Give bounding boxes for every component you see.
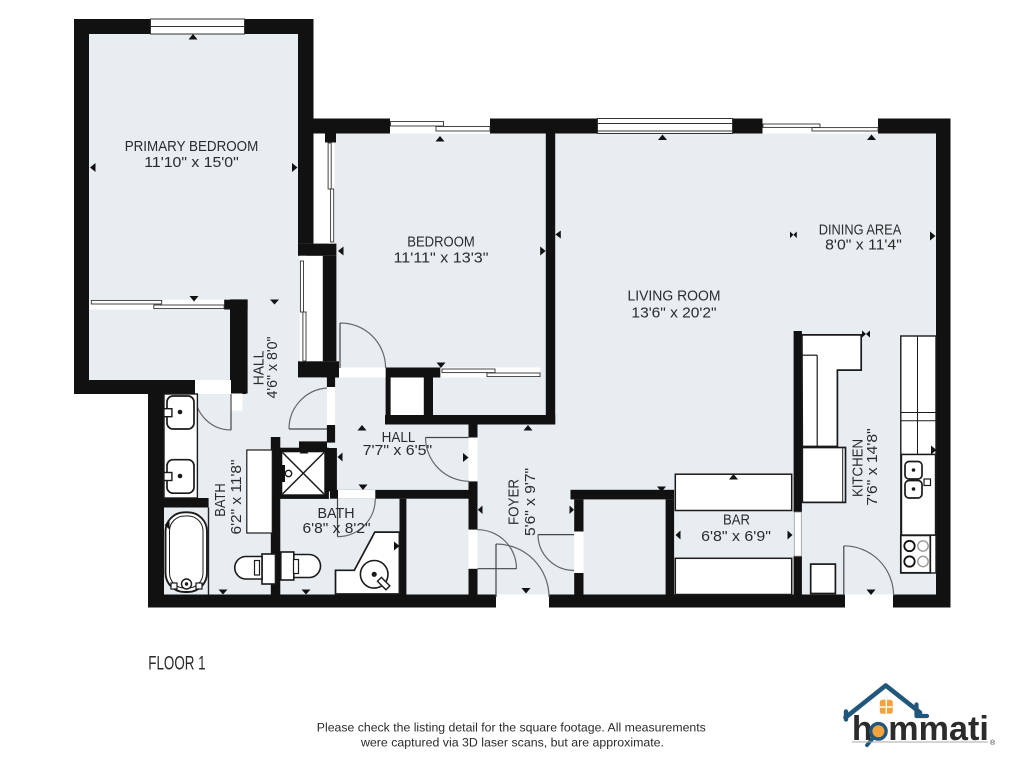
svg-text:4'6" x 8'0": 4'6" x 8'0"	[265, 337, 281, 399]
svg-text:BEDROOM: BEDROOM	[407, 235, 475, 251]
svg-text:5'6" x 9'7": 5'6" x 9'7"	[523, 468, 539, 536]
svg-text:13'6" x 20'2": 13'6" x 20'2"	[631, 306, 716, 322]
svg-text:BAR: BAR	[723, 513, 750, 529]
svg-text:LIVING ROOM: LIVING ROOM	[628, 289, 721, 305]
svg-text:6'2" x 11'8": 6'2" x 11'8"	[229, 460, 245, 535]
svg-text:7'7" x 6'5": 7'7" x 6'5"	[363, 443, 433, 459]
svg-text:7'6" x 14'8": 7'6" x 14'8"	[865, 428, 881, 505]
svg-text:11'11" x 13'3": 11'11" x 13'3"	[394, 251, 489, 267]
svg-text:6'8" x 6'9": 6'8" x 6'9"	[701, 529, 771, 545]
svg-text:were captured via 3D laser sca: were captured via 3D laser scans, but ar…	[360, 735, 664, 749]
svg-text:®: ®	[990, 739, 996, 747]
svg-text:BATH: BATH	[318, 506, 355, 522]
svg-text:6'8" x 8'2": 6'8" x 8'2"	[303, 521, 371, 537]
svg-text:11'10" x 15'0": 11'10" x 15'0"	[144, 155, 239, 171]
svg-text:FOYER: FOYER	[507, 479, 523, 525]
svg-text:DINING AREA: DINING AREA	[819, 223, 902, 239]
svg-text:Please check the listing detai: Please check the listing detail for the …	[317, 721, 706, 735]
svg-text:FLOOR 1: FLOOR 1	[148, 653, 205, 675]
svg-text:PRIMARY BEDROOM: PRIMARY BEDROOM	[125, 139, 259, 155]
svg-text:BATH: BATH	[213, 483, 229, 517]
svg-text:8'0" x 11'4": 8'0" x 11'4"	[825, 238, 902, 254]
